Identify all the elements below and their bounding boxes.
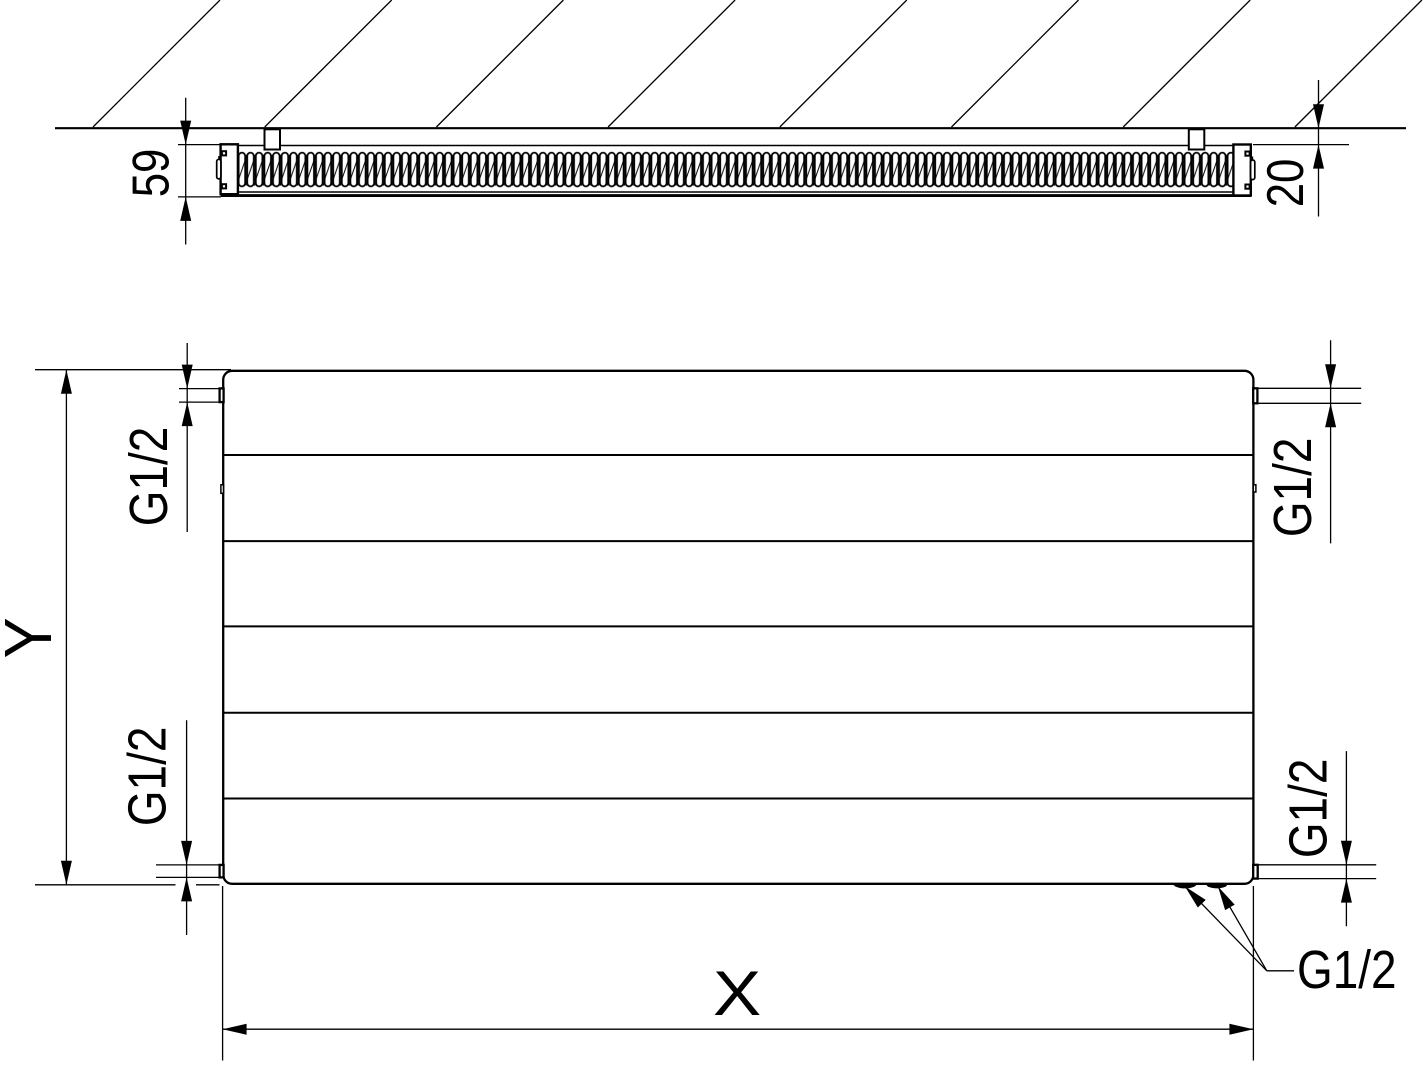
svg-text:Y: Y bbox=[0, 617, 65, 658]
svg-text:59: 59 bbox=[123, 149, 180, 198]
svg-text:G1/2: G1/2 bbox=[1263, 438, 1323, 538]
svg-text:G1/2: G1/2 bbox=[1278, 759, 1338, 859]
svg-text:G1/2: G1/2 bbox=[119, 427, 179, 527]
svg-text:G1/2: G1/2 bbox=[1297, 940, 1397, 1000]
svg-text:X: X bbox=[713, 959, 761, 1029]
svg-text:G1/2: G1/2 bbox=[117, 727, 177, 827]
svg-text:20: 20 bbox=[1258, 159, 1315, 208]
